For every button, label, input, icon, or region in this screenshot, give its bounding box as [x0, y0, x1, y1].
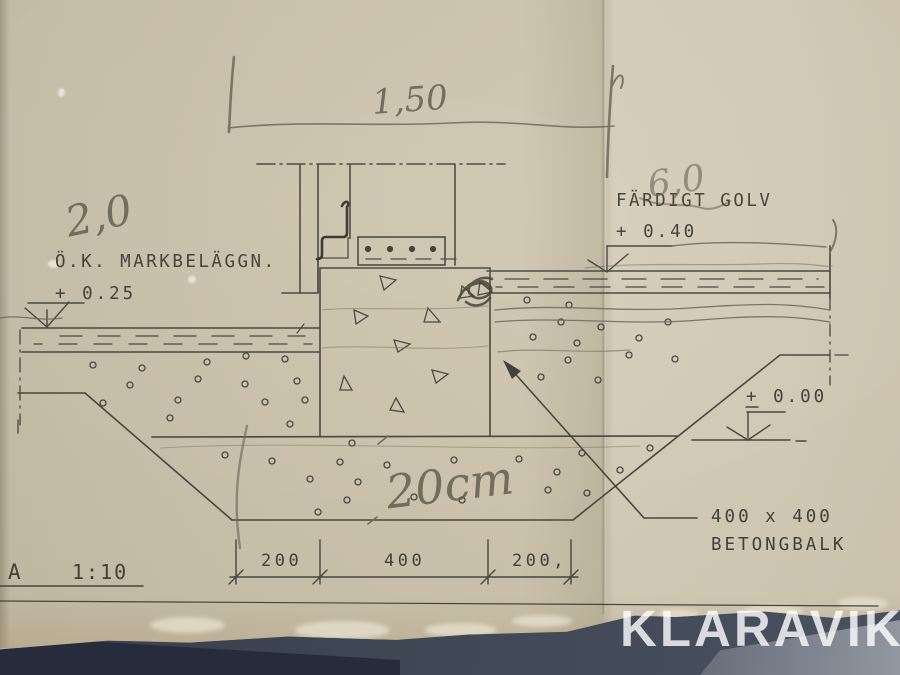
left-paving-slab [22, 328, 320, 352]
ground-label-line2: + 0.25 [55, 284, 136, 304]
handwritten-left-note: 2,0 [60, 185, 137, 247]
tape-stain [512, 615, 572, 627]
photo-of-drawing: Ö.K. MARKBELÄGGN. + 0.25 FÄRDIGT GOLV + … [0, 0, 900, 675]
detail-letter: A [8, 560, 23, 584]
floor-label-line1: FÄRDIGT GOLV [616, 190, 772, 211]
pencil-scribble [458, 278, 492, 306]
drawing-paper: Ö.K. MARKBELÄGGN. + 0.25 FÄRDIGT GOLV + … [0, 0, 900, 675]
pencil-linework [0, 57, 836, 548]
paper-fleck [48, 260, 59, 268]
gravel-bedding [222, 440, 653, 515]
tape-stain [295, 621, 390, 639]
level-marker-000 [692, 407, 806, 441]
handwritten-right-note: 6,0 [645, 157, 707, 206]
flashing-profile [317, 202, 348, 259]
facade-post [282, 165, 318, 333]
level-marker-025 [25, 302, 84, 327]
detail-drawing-svg: Ö.K. MARKBELÄGGN. + 0.25 FÄRDIGT GOLV + … [0, 0, 900, 675]
bedding-layer [152, 355, 830, 524]
dim-200-left: 200 [261, 551, 302, 571]
gravel-left [90, 353, 308, 427]
beam-label-line2: BETONGBALK [711, 535, 846, 555]
top-dimension-line [228, 122, 614, 128]
paper-fleck [188, 276, 196, 283]
handwritten-bedding-note: 20cm [382, 450, 517, 519]
gravel-right [524, 297, 678, 383]
dim-200-right: 200, [512, 551, 567, 571]
column-and-baseplate [317, 165, 462, 290]
beam-label-line1: 400 x 400 [711, 507, 833, 527]
right-floor-slab [487, 246, 848, 385]
bottom-dimension-chain [229, 540, 578, 584]
printed-text: Ö.K. MARKBELÄGGN. + 0.25 FÄRDIGT GOLV + … [8, 190, 846, 584]
tape-stain [150, 617, 225, 633]
tape-stain [425, 623, 497, 637]
concrete-beam [320, 268, 492, 436]
floor-label-line2: + 0.40 [616, 222, 697, 242]
paper-edge-shadow [0, 0, 10, 648]
paper-fold-crease [601, 0, 607, 614]
scale-ratio: 1:10 [72, 560, 128, 584]
dim-400: 400 [384, 551, 425, 571]
aggregate-triangles [340, 276, 492, 412]
zero-level-label: + 0.00 [746, 387, 827, 407]
paper-fleck [58, 88, 65, 97]
handwritten-top-dim: 1,50 [371, 78, 449, 123]
level-marker-040 [588, 246, 672, 272]
left-ground-lines [18, 330, 232, 520]
ground-label-line1: Ö.K. MARKBELÄGGN. [55, 250, 277, 272]
beam-leader-arrow [503, 360, 697, 518]
klaravik-watermark: KLARAVIK [620, 599, 900, 658]
handwritten-notes: 1,50 2,0 6,0 20cm [60, 78, 707, 520]
